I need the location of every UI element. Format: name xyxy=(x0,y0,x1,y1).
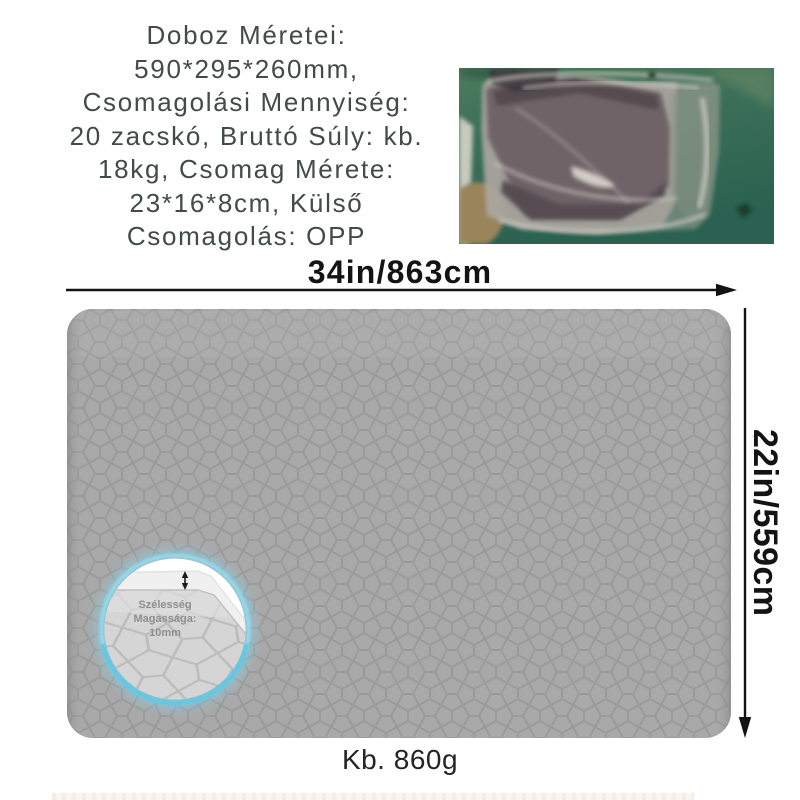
svg-text:10mm: 10mm xyxy=(149,627,181,639)
svg-text:22in/559cm: 22in/559cm xyxy=(746,429,784,616)
svg-text:Szélesség: Szélesség xyxy=(138,599,191,611)
svg-text:Magassága:: Magassága: xyxy=(134,613,197,625)
